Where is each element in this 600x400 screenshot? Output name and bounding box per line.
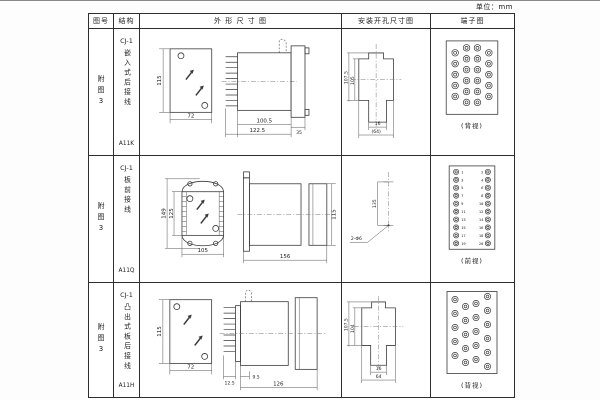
terminal-number: 12: [479, 210, 484, 214]
cell-outline-row3: 115 72 12.5 9.5 126: [140, 283, 342, 397]
cell-install-row1: 107.5 105 16 (64): [342, 29, 431, 156]
dim-front-width: 72: [187, 113, 194, 119]
terminal-number: 18: [479, 234, 484, 238]
dim-body-length: 126: [273, 381, 284, 387]
terminal-number: 20: [479, 242, 484, 246]
terminal-number: 5: [461, 186, 463, 190]
cell-terminal-row1: (背视): [431, 29, 514, 156]
type-code: A11H: [119, 383, 135, 389]
terminal-diagram-a11h: (背视): [431, 283, 514, 397]
terminal-number: 17: [461, 234, 466, 238]
cell-install-row2: 135 2-Φ6: [342, 156, 431, 283]
dim-side-height: 115: [332, 209, 338, 219]
cell-install-row3: 107.5 104 16 64: [342, 283, 431, 397]
header-terminal: 端子图: [431, 14, 514, 29]
page-top-rule: [0, 0, 600, 1]
terminal-view-label: (背视): [461, 381, 483, 390]
terminal-number: 7: [461, 194, 463, 198]
terminal-number: 15: [461, 226, 466, 230]
dim-install-h-inner: 16: [375, 121, 381, 127]
fig-no-label: 附图3: [96, 323, 106, 357]
dim-install-v-outer: 107.5: [344, 71, 350, 84]
structure-desc: 嵌入式后接线: [122, 49, 132, 137]
hole-spec-label: 2-Φ6: [351, 236, 362, 242]
terminal-number: 3: [461, 178, 463, 182]
dim-body-length: 100.5: [257, 118, 273, 124]
type-code: A11Q: [119, 268, 135, 274]
dim-install-v-inner: 105: [350, 76, 356, 85]
model-label: CJ-1: [120, 164, 133, 172]
terminal-number: 9: [461, 202, 464, 206]
model-label: CJ-1: [120, 291, 133, 299]
dim-install-v-inner: 104: [350, 324, 356, 333]
cell-structure-row1: CJ-1 嵌入式后接线 A11K: [114, 29, 140, 156]
terminal-number: 14: [479, 218, 484, 222]
dim-install-vertical: 135: [372, 199, 378, 208]
cell-fig-no-row1: 附图3: [89, 29, 114, 156]
datasheet-page: 单位：mm 图号 结构 外 形 尺 寸 图 安装开孔尺寸图 端子图 附图3 CJ…: [0, 0, 600, 400]
dim-front-width: 72: [187, 364, 194, 370]
header-install: 安装开孔尺寸图: [342, 14, 431, 29]
cell-structure-row2: CJ-1 板前接线 A11Q: [114, 156, 140, 283]
cell-outline-row1: 115 72 100.5 122.5: [140, 29, 342, 156]
dim-flange-length: 35: [296, 130, 302, 136]
terminal-number: 13: [461, 218, 466, 222]
header-fig-no: 图号: [89, 14, 114, 29]
spec-table: 图号 结构 外 形 尺 寸 图 安装开孔尺寸图 端子图 附图3 CJ-1 嵌入式…: [88, 13, 515, 398]
fig-no-label: 附图3: [96, 75, 106, 109]
cell-terminal-row2: 1 3 5 7 9 11 13 15 17 19 2 4 6 8 10 12 1…: [431, 156, 514, 283]
terminal-view-label: (背视): [461, 121, 483, 130]
install-drawing-a11h: 107.5 104 16 64: [342, 283, 430, 397]
install-drawing-a11q: 135 2-Φ6: [342, 156, 430, 282]
dim-offset: 9.5: [252, 374, 259, 380]
terminal-diagram-a11k: (背视): [431, 29, 514, 155]
terminal-number: 4: [481, 178, 484, 182]
terminal-number: 1: [461, 170, 464, 174]
outline-drawing-a11k: 115 72 100.5 122.5: [140, 29, 341, 155]
dim-pin-length: 12.5: [224, 380, 234, 386]
terminal-diagram-a11q: 1 3 5 7 9 11 13 15 17 19 2 4 6 8 10 12 1…: [431, 156, 514, 282]
structure-desc: 板前接线: [122, 176, 132, 264]
header-structure: 结构: [114, 14, 140, 29]
header-outline: 外 形 尺 寸 图: [140, 14, 342, 29]
dim-install-h-outer: (64): [371, 129, 381, 135]
fig-no-label: 附图3: [96, 202, 106, 236]
dim-install-h-outer: 64: [376, 374, 382, 380]
dim-total-length: 122.5: [250, 128, 266, 134]
dim-front-height: 115: [157, 75, 163, 85]
dim-install-h-inner: 16: [376, 366, 382, 372]
terminal-view-label: (前视): [461, 256, 483, 265]
install-drawing-a11k: 107.5 105 16 (64): [342, 29, 430, 155]
dim-front-width: 105: [198, 248, 208, 254]
type-code: A11K: [119, 141, 134, 147]
model-label: CJ-1: [120, 37, 133, 45]
structure-desc: 凸出式板后接线: [122, 303, 132, 379]
cell-fig-no-row2: 附图3: [89, 156, 114, 283]
unit-label: 单位：mm: [476, 2, 513, 12]
cell-terminal-row3: (背视): [431, 283, 514, 397]
dim-install-v-outer: 107.5: [344, 318, 350, 331]
terminal-number: 16: [479, 226, 484, 230]
cell-fig-no-row3: 附图3: [89, 283, 114, 397]
dim-front-height: 115: [157, 326, 163, 336]
outline-drawing-a11h: 115 72 12.5 9.5 126: [140, 283, 341, 397]
outline-drawing-a11q: 149 125 105 156 115: [140, 156, 341, 282]
dim-inner-height: 125: [169, 208, 175, 218]
cell-structure-row3: CJ-1 凸出式板后接线 A11H: [114, 283, 140, 397]
dim-side-length: 156: [280, 254, 291, 260]
terminal-number: 6: [481, 186, 484, 190]
terminal-number: 8: [481, 194, 484, 198]
terminal-number: 19: [461, 242, 466, 246]
terminal-number: 2: [481, 170, 483, 174]
terminal-number: 10: [479, 202, 484, 206]
cell-outline-row2: 149 125 105 156 115: [140, 156, 342, 283]
terminal-number: 11: [461, 210, 466, 214]
dim-outer-height: 149: [162, 208, 168, 219]
